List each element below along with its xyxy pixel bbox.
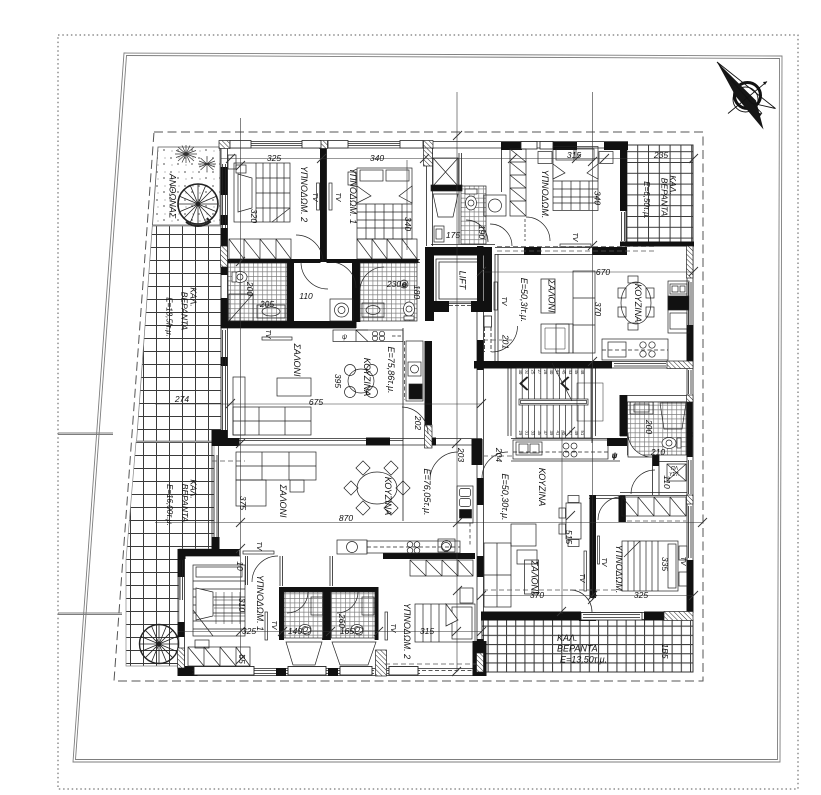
svg-text:41: 41 xyxy=(555,431,560,436)
svg-text:320: 320 xyxy=(249,209,259,223)
svg-text:TV: TV xyxy=(679,557,686,567)
svg-text:325: 325 xyxy=(634,590,648,600)
svg-text:ΑΝΘΩΝΑΣ: ΑΝΘΩΝΑΣ xyxy=(168,173,178,219)
svg-text:205: 205 xyxy=(259,299,274,309)
svg-text:27: 27 xyxy=(537,370,542,375)
svg-text:ΥΠΝΟΔΩΜ. 1: ΥΠΝΟΔΩΜ. 1 xyxy=(255,575,265,631)
svg-text:235: 235 xyxy=(653,150,668,160)
svg-text:ΒΕΡΑΝΤΑ: ΒΕΡΑΝΤΑ xyxy=(660,178,670,217)
svg-text:340: 340 xyxy=(403,217,413,231)
svg-text:175: 175 xyxy=(446,230,460,240)
svg-text:370: 370 xyxy=(593,302,603,316)
svg-text:ΥΠΝΟΔΩΜ. 1: ΥΠΝΟΔΩΜ. 1 xyxy=(348,168,358,224)
svg-text:TV: TV xyxy=(600,558,607,568)
svg-text:LIFT: LIFT xyxy=(458,271,468,291)
svg-text:48: 48 xyxy=(580,370,585,375)
svg-text:325: 325 xyxy=(242,626,256,636)
svg-text:ΚΑΛ.: ΚΑΛ. xyxy=(557,633,578,643)
svg-text:335: 335 xyxy=(660,557,670,571)
svg-text:45: 45 xyxy=(574,370,579,375)
svg-text:ΥΠΝΟΔΩΜ.: ΥΠΝΟΔΩΜ. xyxy=(540,170,550,219)
svg-text:49: 49 xyxy=(574,431,579,436)
svg-text:1Β5: 1Β5 xyxy=(660,643,670,658)
svg-text:42: 42 xyxy=(555,370,560,375)
svg-text:31: 31 xyxy=(524,431,529,436)
svg-text:43: 43 xyxy=(568,370,573,375)
svg-text:TV: TV xyxy=(255,542,262,552)
svg-text:TV: TV xyxy=(578,574,585,584)
svg-text:Ε=50,3Ιτ.μ.: Ε=50,3Ιτ.μ. xyxy=(519,278,529,323)
svg-text:29: 29 xyxy=(518,431,523,436)
svg-text:310: 310 xyxy=(237,598,247,612)
svg-text:ψ: ψ xyxy=(342,334,347,341)
svg-text:30: 30 xyxy=(518,370,523,375)
svg-text:TV: TV xyxy=(264,330,271,340)
svg-text:10: 10 xyxy=(235,561,245,571)
svg-text:ΚΟΥΖΙΝΑ: ΚΟΥΖΙΝΑ xyxy=(383,477,393,516)
svg-text:TV: TV xyxy=(389,624,396,634)
svg-text:375: 375 xyxy=(238,496,248,510)
svg-text:40: 40 xyxy=(549,370,554,375)
svg-text:ΣΑΛΟΝΙ: ΣΑΛΟΝΙ xyxy=(530,560,540,594)
svg-text:340: 340 xyxy=(593,191,603,205)
svg-text:180: 180 xyxy=(412,285,422,299)
svg-text:204: 204 xyxy=(494,447,504,462)
svg-text:45: 45 xyxy=(562,370,567,375)
svg-text:260: 260 xyxy=(337,613,347,628)
svg-text:ΒΕΡΑΝΤΑ: ΒΕΡΑΝΤΑ xyxy=(180,292,190,331)
svg-text:ΣΑΛΟΝΙ: ΣΑΛΟΝΙ xyxy=(278,484,288,518)
svg-text:670: 670 xyxy=(596,267,610,277)
svg-text:39: 39 xyxy=(549,431,554,436)
svg-text:Ε=76,05τ.μ.: Ε=76,05τ.μ. xyxy=(422,468,432,515)
svg-text:110: 110 xyxy=(299,291,313,301)
svg-text:Ε=18,5Ιτ.μ.: Ε=18,5Ιτ.μ. xyxy=(165,297,174,337)
svg-text:210: 210 xyxy=(650,447,665,457)
svg-text:315: 315 xyxy=(567,150,581,160)
svg-text:TV: TV xyxy=(270,621,277,631)
svg-text:ΒΕΡΑΝΤΑ: ΒΕΡΑΝΤΑ xyxy=(557,644,598,654)
svg-text:65: 65 xyxy=(237,654,247,664)
svg-text:Ε=50,30τ.μ.: Ε=50,30τ.μ. xyxy=(500,473,510,520)
svg-text:37: 37 xyxy=(543,431,548,436)
svg-text:202: 202 xyxy=(413,415,423,430)
svg-text:35: 35 xyxy=(537,431,542,436)
svg-text:395: 395 xyxy=(333,374,343,388)
svg-text:TV: TV xyxy=(500,297,507,307)
svg-text:Ε=13,50τ.μ.: Ε=13,50τ.μ. xyxy=(560,655,607,665)
svg-text:870: 870 xyxy=(339,513,353,523)
svg-text:TV: TV xyxy=(334,193,341,203)
svg-text:25: 25 xyxy=(531,370,536,375)
svg-text:ΚΟΥΖΙΝΑ: ΚΟΥΖΙΝΑ xyxy=(537,468,547,507)
svg-text:ΚΟΥΖΙΝΑ: ΚΟΥΖΙΝΑ xyxy=(362,358,372,397)
svg-text:32: 32 xyxy=(524,370,529,375)
svg-text:200: 200 xyxy=(644,419,654,434)
svg-text:274: 274 xyxy=(174,394,189,404)
svg-text:230: 230 xyxy=(386,279,401,289)
svg-text:ψ: ψ xyxy=(612,453,617,460)
svg-text:ΥΠΝΟΔΩΜ.: ΥΠΝΟΔΩΜ. xyxy=(614,545,624,594)
svg-text:370: 370 xyxy=(530,590,544,600)
svg-text:Ε=75,86τ.μ.: Ε=75,86τ.μ. xyxy=(386,346,396,393)
svg-text:45: 45 xyxy=(562,431,567,436)
svg-text:675: 675 xyxy=(309,397,323,407)
svg-text:ΥΣΤ.: ΥΣΤ. xyxy=(669,472,679,478)
svg-text:Θ: Θ xyxy=(402,283,407,289)
svg-text:200: 200 xyxy=(245,281,255,296)
svg-text:51: 51 xyxy=(580,431,585,436)
svg-text:Ε=16,00τ.μ.: Ε=16,00τ.μ. xyxy=(165,484,174,526)
svg-text:ΒΕΡΑΝΤΑ: ΒΕΡΑΝΤΑ xyxy=(180,484,190,523)
svg-text:325: 325 xyxy=(267,153,281,163)
svg-text:340: 340 xyxy=(370,153,384,163)
svg-text:190: 190 xyxy=(477,225,487,239)
svg-text:ΣΑΛΟΝΙ: ΣΑΛΟΝΙ xyxy=(292,343,302,377)
svg-text:33: 33 xyxy=(531,431,536,436)
svg-text:28: 28 xyxy=(543,370,548,375)
svg-text:203: 203 xyxy=(456,447,466,462)
svg-text:ΥΠΝΟΔΩΜ. 2: ΥΠΝΟΔΩΜ. 2 xyxy=(299,166,309,222)
svg-text:315: 315 xyxy=(420,626,434,636)
svg-text:515: 515 xyxy=(564,530,574,544)
svg-text:ΥΠΝΟΔΩΜ. 2: ΥΠΝΟΔΩΜ. 2 xyxy=(402,603,412,659)
svg-text:201: 201 xyxy=(501,334,511,349)
svg-text:TV: TV xyxy=(311,193,318,203)
svg-text:140: 140 xyxy=(288,626,302,636)
svg-text:TV: TV xyxy=(571,233,578,243)
svg-text:ΚΟΥΖΙΝΑ: ΚΟΥΖΙΝΑ xyxy=(633,284,643,323)
svg-text:Ε=6,50τ.μ.: Ε=6,50τ.μ. xyxy=(642,181,651,218)
